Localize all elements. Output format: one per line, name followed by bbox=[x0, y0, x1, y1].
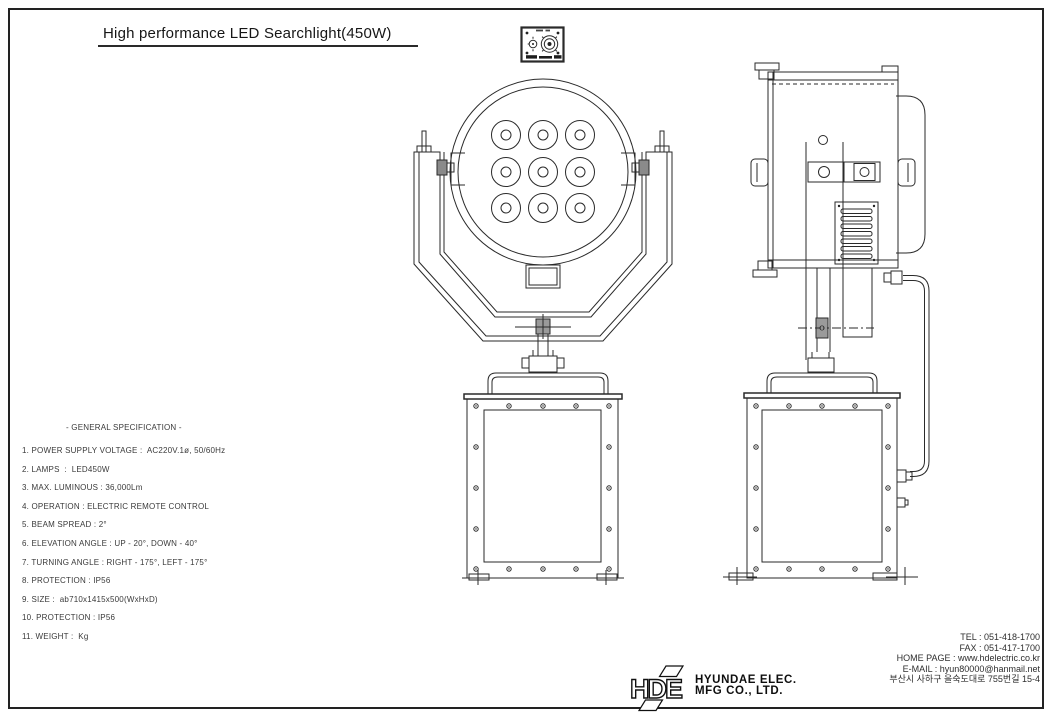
pedestal-stem-side bbox=[767, 373, 877, 393]
spec-item: 2. LAMPS : LED450W bbox=[22, 461, 352, 480]
company-logo: HDE HYUNDAE ELEC. MFG CO., LTD. bbox=[630, 665, 797, 712]
spec-item: 8. PROTECTION : IP56 bbox=[22, 572, 352, 591]
general-specification: - GENERAL SPECIFICATION - 1. POWER SUPPL… bbox=[22, 423, 352, 647]
hde-monogram-icon: HDE bbox=[630, 665, 694, 712]
front-view bbox=[414, 79, 672, 585]
rear-cover bbox=[896, 96, 925, 253]
side-view bbox=[723, 63, 929, 585]
top-connector-plate bbox=[522, 28, 564, 62]
yoke-pivot-bolt bbox=[515, 314, 571, 339]
specification-heading: - GENERAL SPECIFICATION - bbox=[66, 423, 352, 432]
company-name: HYUNDAE ELEC. MFG CO., LTD. bbox=[695, 675, 797, 696]
pedestal-stem-front bbox=[488, 334, 608, 394]
company-name-line2: MFG CO., LTD. bbox=[695, 686, 797, 697]
cover-screws-front bbox=[474, 404, 611, 571]
mounting-feet-side bbox=[723, 567, 918, 585]
contact-address: 부산시 사하구 을숙도대로 755번길 15-4 bbox=[889, 674, 1040, 685]
illegible-label-marks bbox=[526, 30, 562, 59]
base-box-front bbox=[462, 394, 624, 585]
spec-item: 6. ELEVATION ANGLE : UP - 20°, DOWN - 40… bbox=[22, 535, 352, 554]
contact-fax: FAX : 051-417-1700 bbox=[889, 643, 1040, 654]
spec-item: 1. POWER SUPPLY VOLTAGE : AC220V.1ø, 50/… bbox=[22, 442, 352, 461]
yoke bbox=[414, 131, 672, 341]
contact-tel: TEL : 051-418-1700 bbox=[889, 632, 1040, 643]
spec-item: 10. PROTECTION : IP56 bbox=[22, 609, 352, 628]
handle-left bbox=[751, 159, 768, 186]
contact-homepage: HOME PAGE : www.hdelectric.co.kr bbox=[889, 653, 1040, 664]
power-cable bbox=[884, 271, 929, 482]
led-array bbox=[492, 121, 595, 223]
cover-screws-side bbox=[754, 404, 890, 571]
trunnion-bolt-right bbox=[621, 153, 649, 185]
company-name-line1: HYUNDAE ELEC. bbox=[695, 675, 797, 686]
vent-louver bbox=[835, 202, 878, 264]
drawing-sheet: { "sheet": { "title": "High performance … bbox=[0, 0, 1056, 721]
gland-stub bbox=[897, 498, 905, 507]
trunnion-bolt-left bbox=[437, 153, 465, 185]
base-box-side bbox=[723, 393, 918, 585]
spec-item: 5. BEAM SPREAD : 2° bbox=[22, 516, 352, 535]
spec-item: 3. MAX. LUMINOUS : 36,000Lm bbox=[22, 479, 352, 498]
spec-item: 11. WEIGHT : Kg bbox=[22, 628, 352, 647]
spec-item: 4. OPERATION : ELECTRIC REMOTE CONTROL bbox=[22, 498, 352, 517]
contact-email: E-MAIL : hyun80000@hanmail.net bbox=[889, 664, 1040, 675]
spec-item: 7. TURNING ANGLE : RIGHT - 175°, LEFT - … bbox=[22, 554, 352, 573]
searchlight-head bbox=[450, 79, 636, 265]
support-column bbox=[798, 136, 880, 373]
spec-item: 9. SIZE : ab710x1415x500(WxHxD) bbox=[22, 591, 352, 610]
contact-block: TEL : 051-418-1700 FAX : 051-417-1700 HO… bbox=[889, 632, 1040, 685]
housing-drum bbox=[751, 63, 925, 277]
handle-right bbox=[898, 159, 915, 186]
